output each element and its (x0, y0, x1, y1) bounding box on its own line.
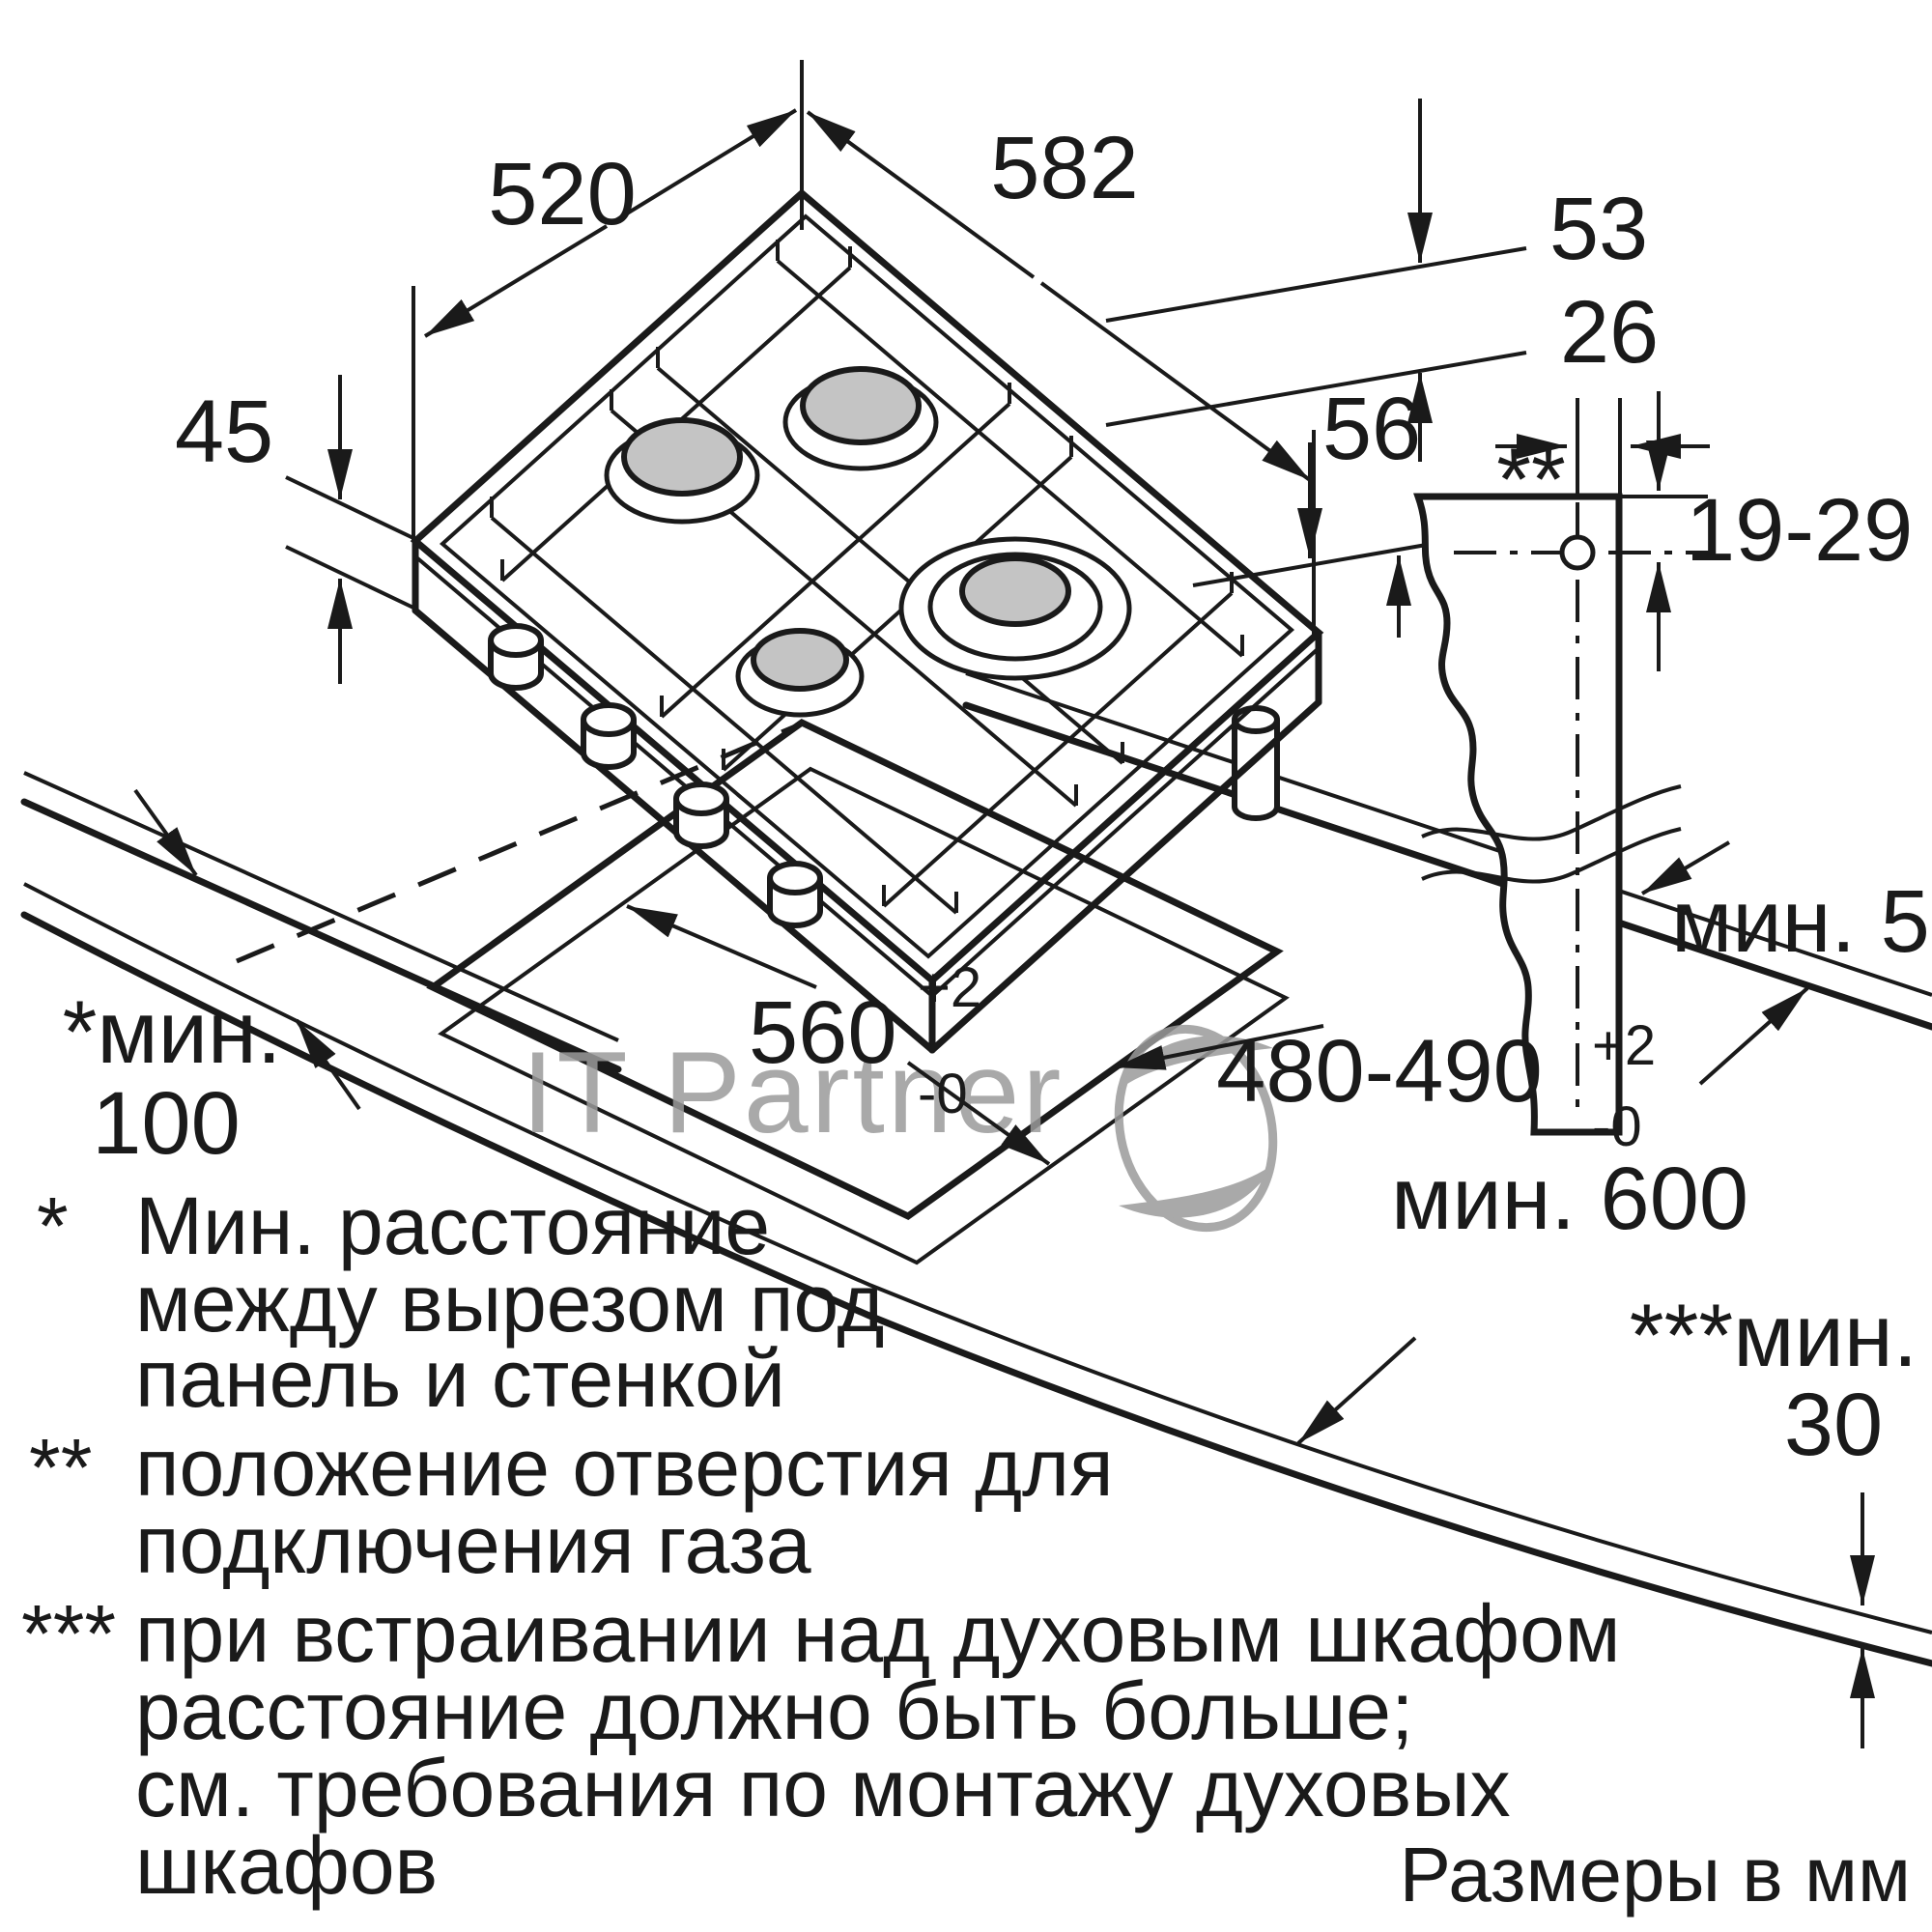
dim-label-19-29: 19-29 (1686, 481, 1913, 580)
dim-label-56: 56 (1322, 380, 1421, 478)
pan-support-grid (492, 240, 1242, 913)
side-bracket-detail: 26 ** 19-29 мин. 50 (1418, 283, 1932, 1132)
dimension-min-100: *мин. 100 (63, 790, 359, 1173)
dimension-min-30: ***мин. 30 (1630, 1287, 1918, 1748)
dim-label-min-30-prefix: ***мин. (1630, 1287, 1918, 1385)
dim-label-520: 520 (488, 145, 637, 243)
footnotes: * Мин. расстояние между вырезом под пане… (21, 1180, 1621, 1911)
dim-label-53: 53 (1549, 180, 1648, 278)
footnote-line: панель и стенкой (135, 1333, 785, 1424)
burner-cap-front (753, 631, 846, 689)
dim-label-min-50: мин. 50 (1671, 872, 1932, 971)
dim-label-min-100-prefix: *мин. (63, 983, 282, 1082)
hob-isometric-view (415, 193, 1319, 1050)
control-knob (676, 784, 726, 846)
units-note: Размеры в мм (1400, 1832, 1911, 1918)
dim-label-min-600: мин. 600 (1391, 1150, 1748, 1248)
control-knob (770, 864, 820, 925)
footnote-marker: ** (29, 1422, 92, 1513)
dimension-45: 45 (175, 375, 415, 684)
dim-label-26: 26 (1560, 283, 1659, 382)
dim-label-min-100-value: 100 (92, 1074, 241, 1173)
tolerance-minus: -0 (918, 1063, 968, 1125)
footnote-marker: *** (21, 1588, 116, 1679)
burner-cap-wok (962, 558, 1068, 624)
footnote-marker: * (37, 1180, 69, 1271)
burner-cap-left (624, 420, 740, 494)
control-knob (491, 626, 541, 688)
hole-position-marker: ** (1496, 431, 1566, 529)
footnote-line: шкафов (135, 1820, 438, 1911)
dim-label-min-30-value: 30 (1784, 1376, 1883, 1474)
burner-cap-back (803, 369, 919, 442)
pan-support-bar (492, 497, 956, 913)
hob-installation-diagram: IT Partner (0, 0, 1932, 1932)
installation-drawing-page: IT Partner (0, 0, 1932, 1932)
gas-connection-hole (1562, 537, 1593, 568)
dim-label-582: 582 (990, 119, 1139, 217)
hob-top-rim (415, 193, 1319, 996)
control-knob (583, 705, 634, 767)
tolerance-plus: +2 (918, 956, 981, 1019)
dimension-min-50: мин. 50 (1642, 842, 1932, 971)
worktop-back-edge (966, 673, 1932, 1027)
footnote-line: подключения газа (135, 1499, 811, 1590)
dimension-19-29: 19-29 (1619, 391, 1913, 671)
dim-label-480-490: 480-490 (1216, 1022, 1543, 1121)
dimension-26: 26 ** (1495, 283, 1710, 529)
dim-label-560: 560 (749, 983, 897, 1082)
tolerance-plus: +2 (1592, 1014, 1656, 1077)
dim-label-45: 45 (175, 383, 273, 481)
burners (607, 369, 1129, 715)
